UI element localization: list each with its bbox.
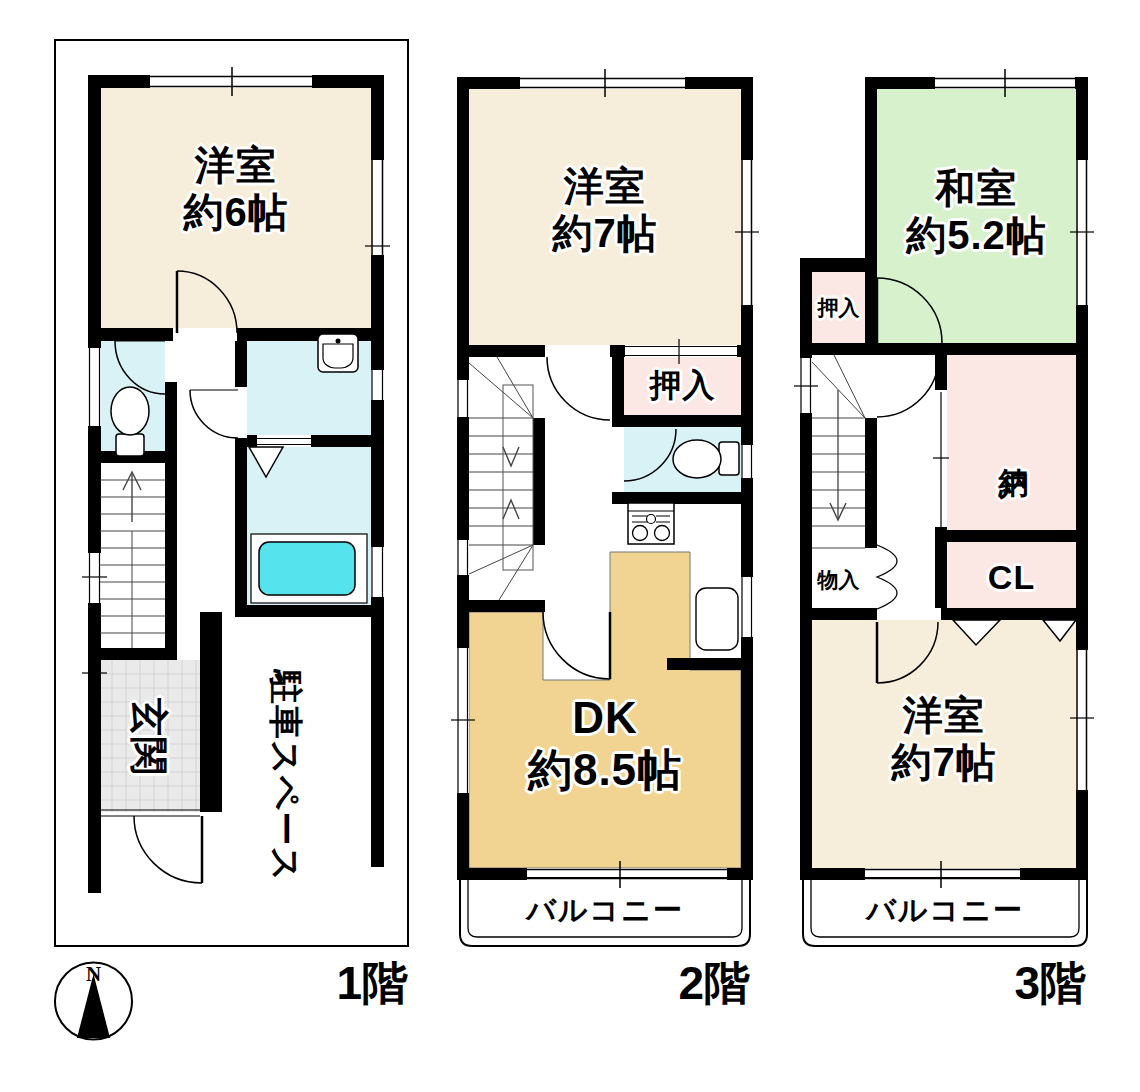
compass-north-label: N [86,962,101,986]
room-label-2f-balcony: バルコニー [460,893,750,927]
room-label-3f-storage2: 物入 [800,568,877,593]
room-size: 約7帖 [469,210,741,257]
room-name: 和室 [877,165,1076,212]
room-label-3f-balcony: バルコニー [803,893,1087,927]
stairs-1f [100,472,165,648]
toilet-icon-2f [673,440,739,478]
toilet-icon-1f [111,387,149,456]
sink-icon-1f [318,334,358,372]
room-name: 洋室 [812,692,1076,739]
room-name: 洋室 [469,163,741,210]
kitchen-sink-icon-2f [696,588,738,650]
floor-label-3f: 3階 [966,956,1086,1010]
room-name: 洋室 [100,142,372,189]
room-label-2f-closet: 押入 [624,367,741,405]
room-size: 約8.5帖 [469,744,741,796]
room-size: 約7帖 [812,739,1076,786]
room-size: 約5.2帖 [877,212,1076,259]
room-label-3f-western: 洋室 約7帖 [812,692,1076,786]
bathtub-icon-1f [251,534,367,603]
floorplan-canvas: N 洋室 約6帖 玄関 駐車スペース 1階 洋室 約7帖 押入 DK 約8.5帖… [0,0,1140,1092]
room-label-3f-closet: 押入 [812,296,865,321]
compass: N [55,962,132,1040]
room-label-3f-cl: CL [947,557,1076,597]
room-label-1f-parking: 駐車スペース [266,652,306,900]
room-label-1f-western: 洋室 約6帖 [100,142,372,236]
room-size: 約6帖 [100,189,372,236]
room-label-2f-dk: DK 約8.5帖 [469,692,741,796]
room-label-3f-storage: 納戸 [996,398,1031,498]
floor-label-2f: 2階 [630,956,750,1010]
floor-label-1f: 1階 [288,956,408,1010]
stove-icon-2f [628,503,674,544]
stairs-2f [469,357,533,600]
room-label-1f-entrance: 玄関 [126,678,171,796]
room-name: DK [469,692,741,744]
room-label-3f-japanese: 和室 約5.2帖 [877,165,1076,259]
stairs-3f [812,355,865,548]
room-label-2f-western: 洋室 約7帖 [469,163,741,257]
